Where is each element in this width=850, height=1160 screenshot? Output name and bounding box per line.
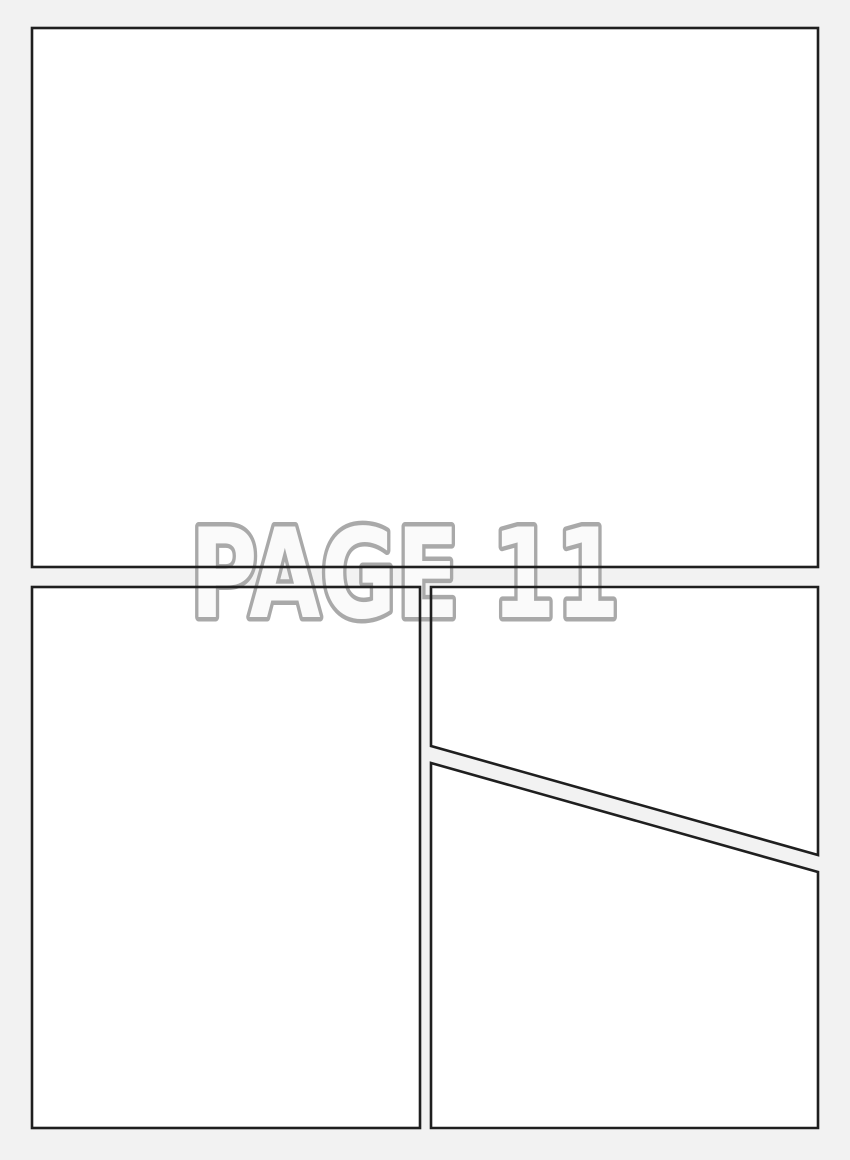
page-canvas: PAGE 11	[0, 0, 850, 1160]
comic-page-template: PAGE 11	[0, 0, 850, 1160]
panel-bottom-left-fill	[32, 587, 420, 1128]
panel-top-fill	[32, 28, 818, 567]
page-number-watermark: PAGE 11	[190, 503, 620, 647]
